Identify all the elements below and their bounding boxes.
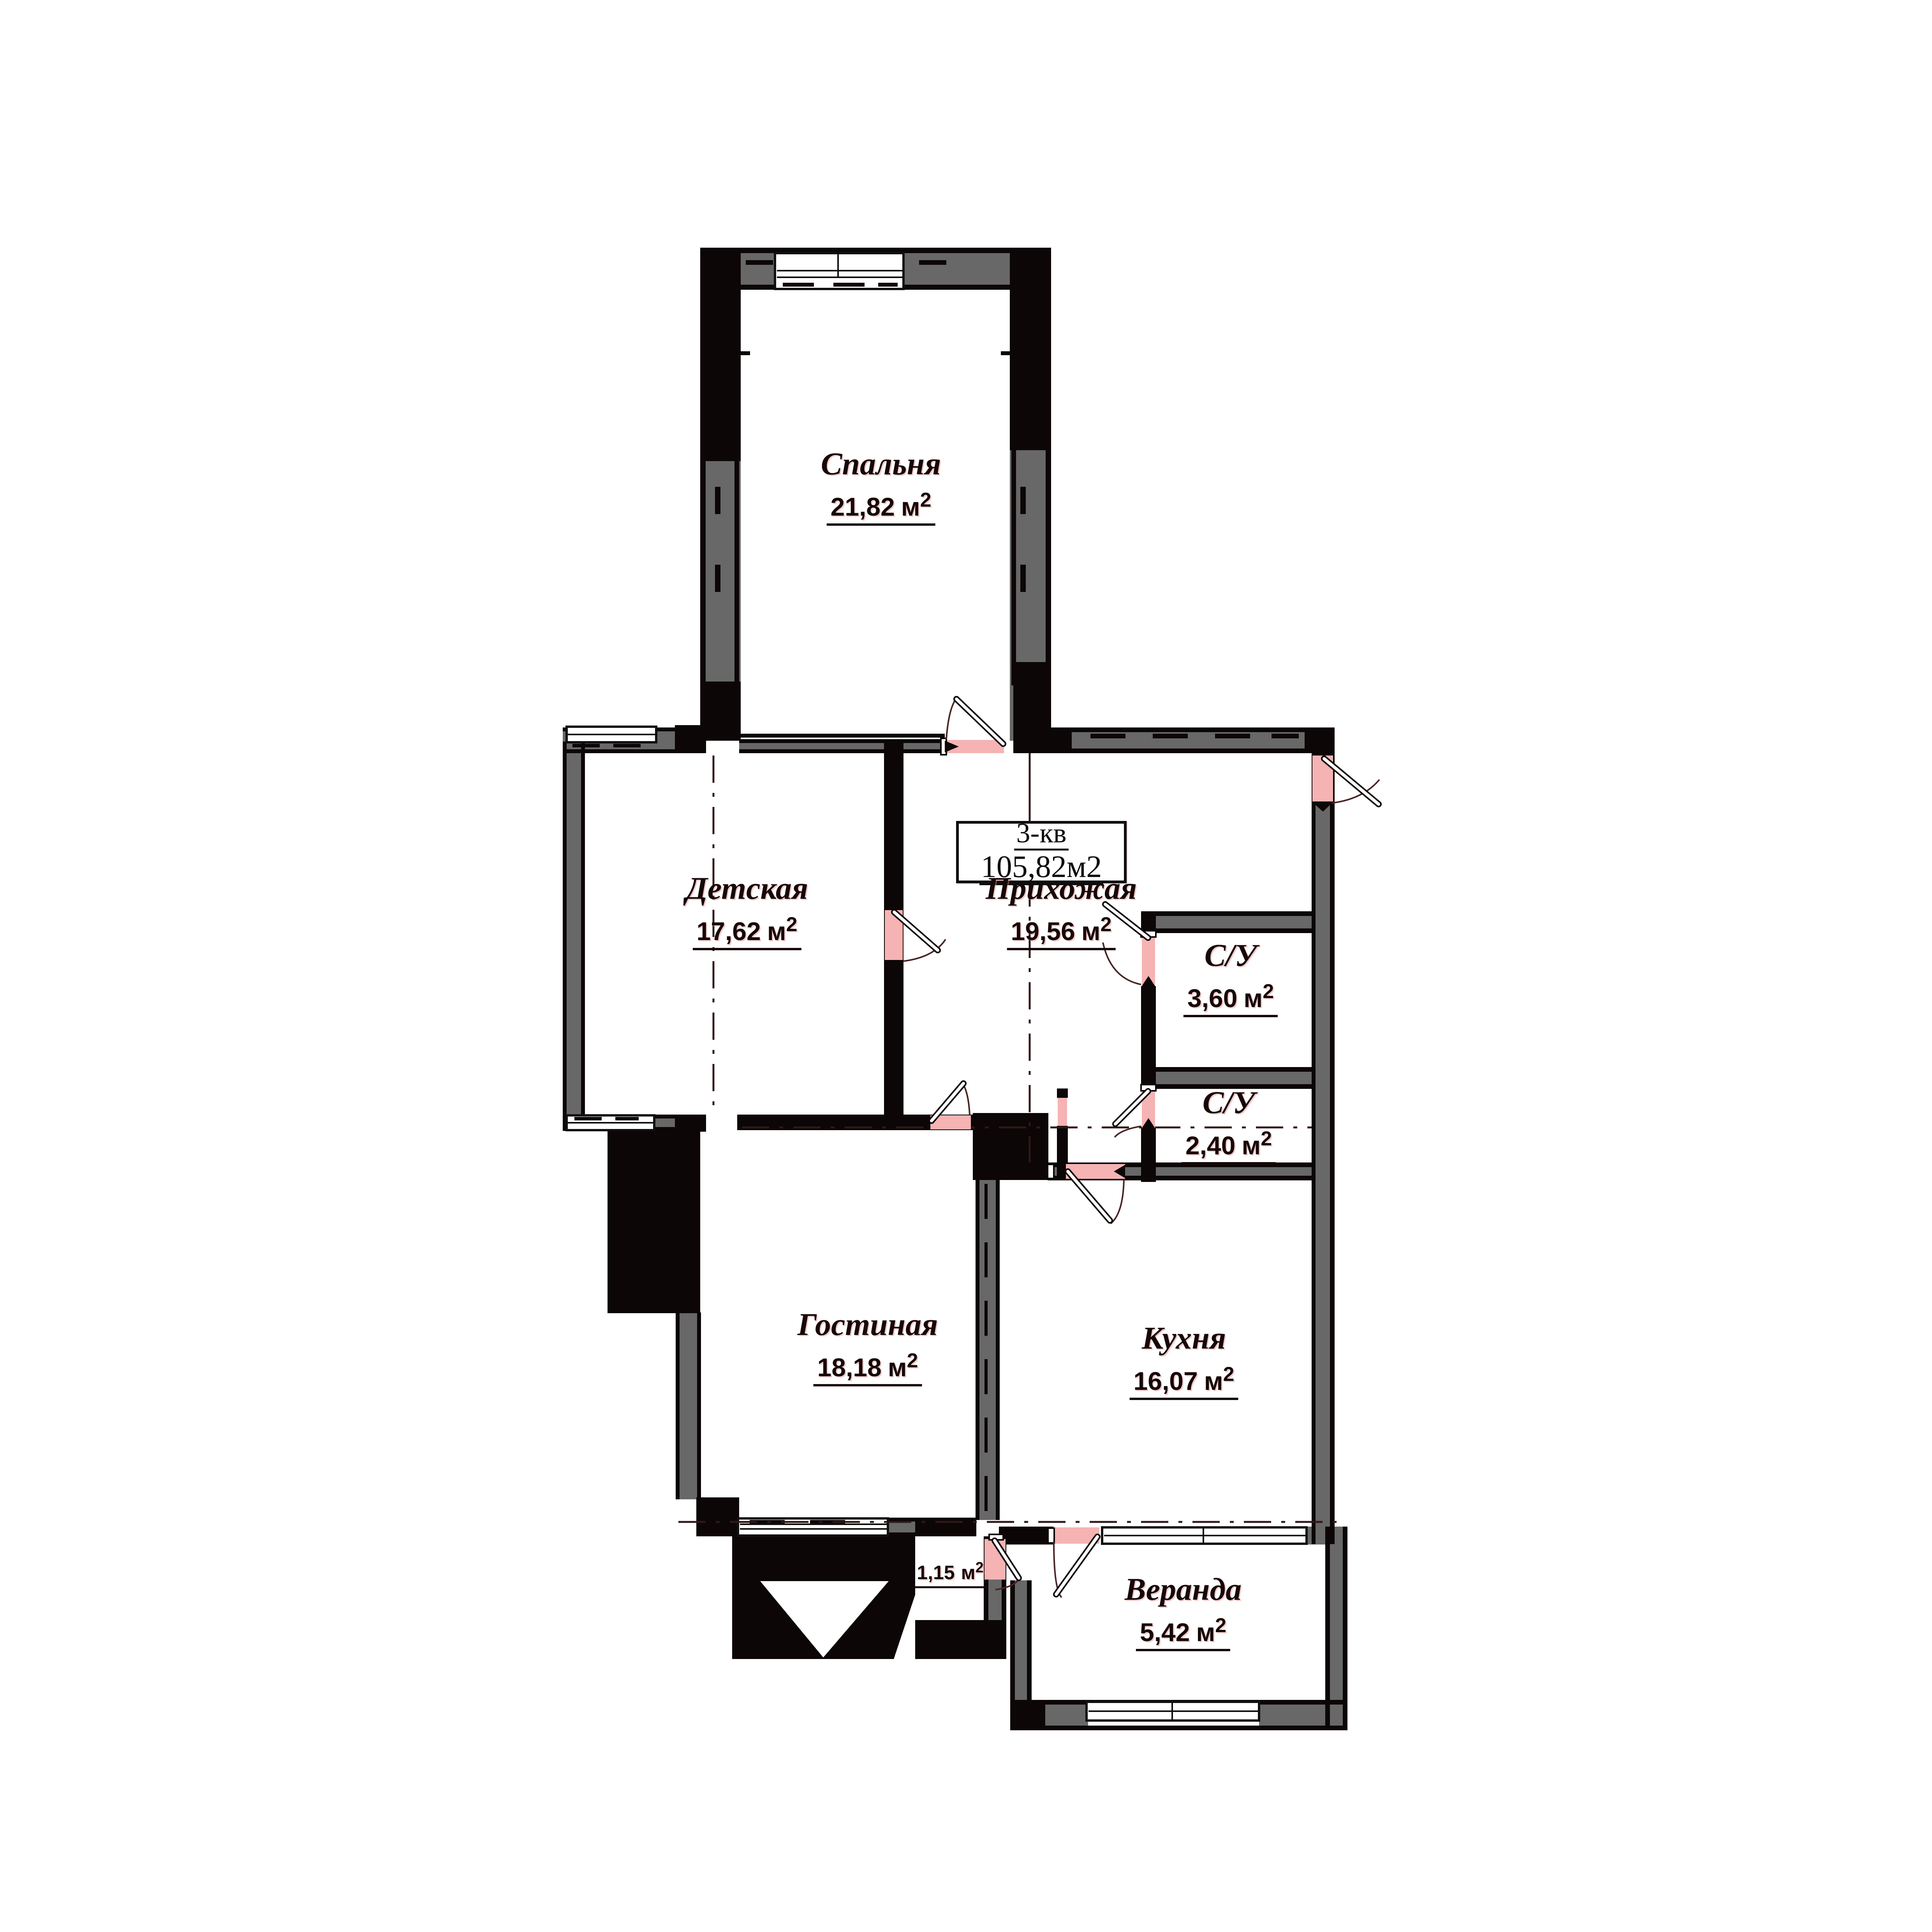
room-label-living: Гостиная 18,18м2 <box>798 1309 938 1386</box>
room-label-bathroom2: С/У 2,40м2 <box>1182 1087 1276 1164</box>
room-label-kids: Детская 17,62м2 <box>686 872 808 950</box>
apartment-number: 3-кв <box>1014 819 1069 851</box>
room-label-hallway: Прихожая 19,56м2 <box>986 872 1137 950</box>
floor-plan: .gy{fill:#686868;} .bk{fill:#0c0606;} .w… <box>0 0 1932 1932</box>
room-label-bathroom1: С/У 3,60м2 <box>1184 939 1278 1017</box>
floor-plan-drawing: .gy{fill:#686868;} .bk{fill:#0c0606;} .w… <box>0 0 1932 1932</box>
room-label-bedroom: Спальня 21,82м2 <box>821 448 941 526</box>
room-label-veranda: Веранда 5,42м2 <box>1125 1573 1242 1651</box>
room-label-storage: 1,15м2 <box>913 1560 987 1588</box>
room-label-kitchen: Кухня 16,07м2 <box>1130 1322 1238 1400</box>
